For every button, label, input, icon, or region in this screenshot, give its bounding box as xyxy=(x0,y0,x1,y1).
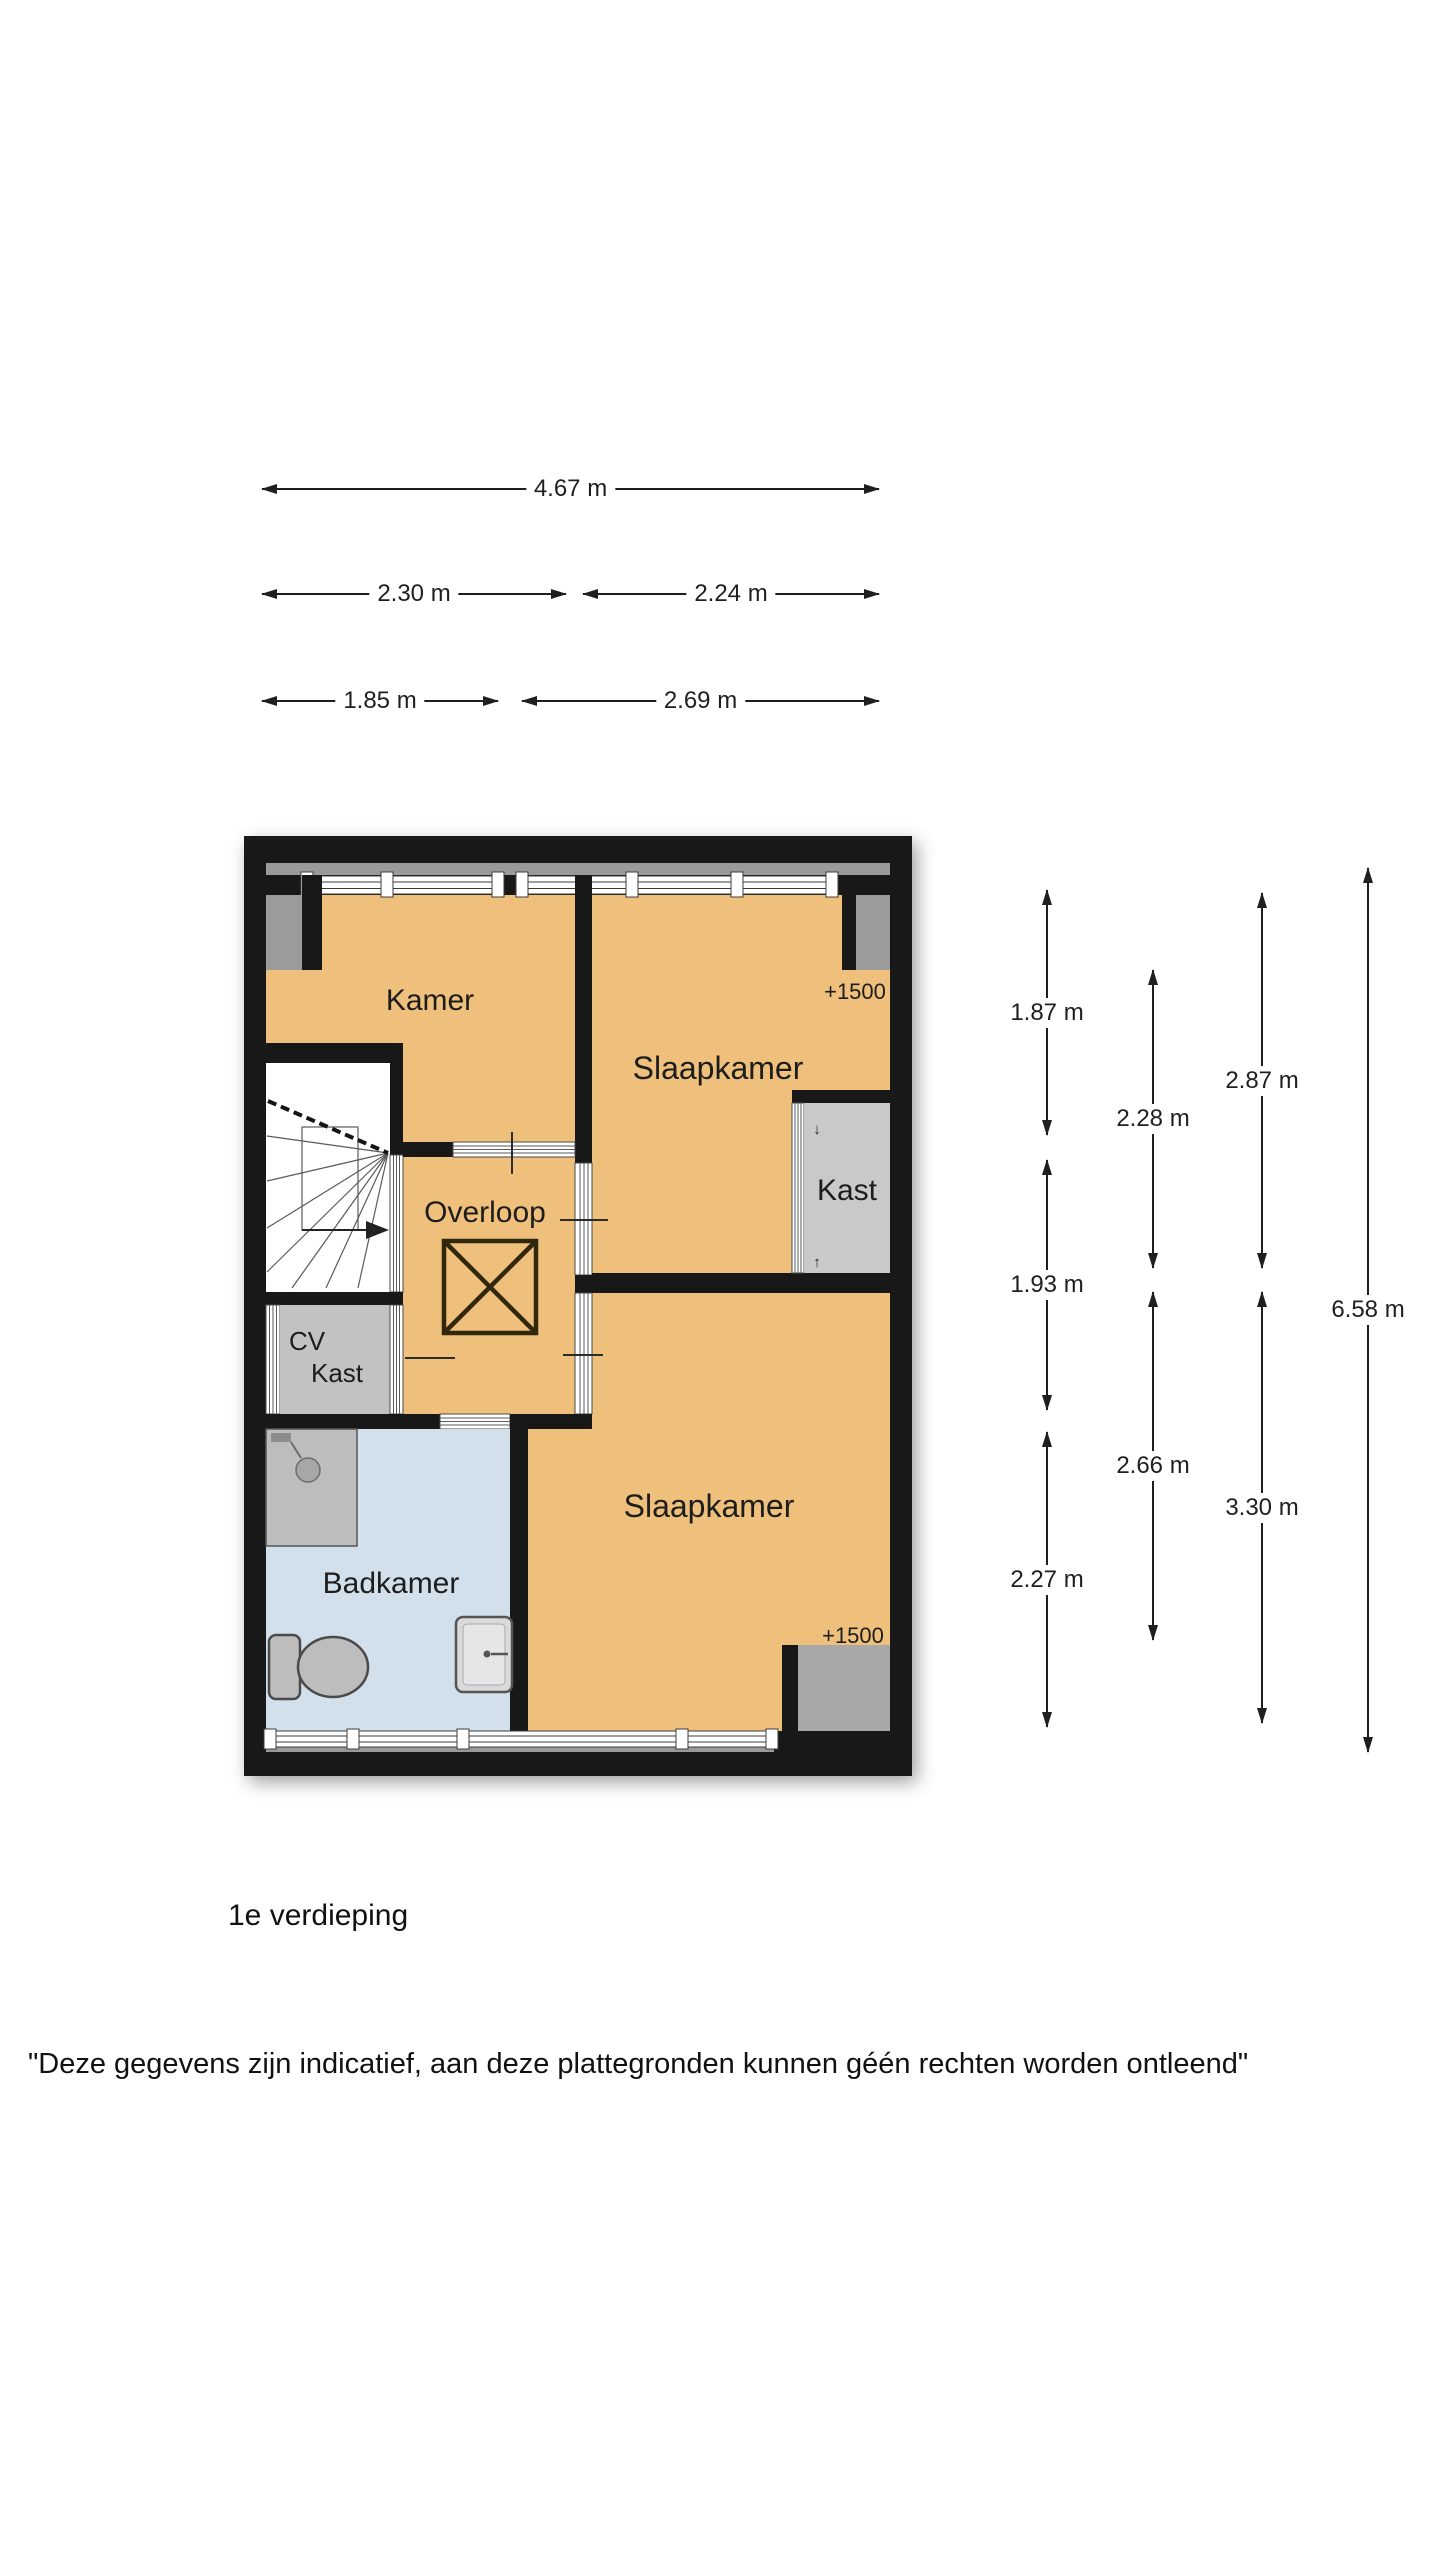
dimension-label: 2.27 m xyxy=(1002,1565,1091,1595)
stairwell xyxy=(252,1043,403,1305)
dimension-right-c1: 2.87 m xyxy=(1261,893,1263,1268)
divider-wall xyxy=(575,875,592,1414)
dimension-right-b1: 2.28 m xyxy=(1152,970,1154,1268)
stair-opening xyxy=(390,1155,403,1292)
dimension-top-total: 4.67 m xyxy=(262,488,879,490)
dimension-label: 2.69 m xyxy=(656,686,745,716)
dimension-label: 2.30 m xyxy=(369,579,458,609)
shower xyxy=(266,1429,357,1546)
slaapkamer-top-label: Slaapkamer xyxy=(633,1050,804,1086)
dimension-label: 3.30 m xyxy=(1217,1493,1306,1523)
dimension-top-left-upper: 2.30 m xyxy=(262,593,566,595)
sink xyxy=(456,1617,512,1692)
dimension-right-a1: 1.87 m xyxy=(1046,890,1048,1135)
dimension-right-total: 6.58 m xyxy=(1367,868,1369,1752)
dimension-label: 1.87 m xyxy=(1002,998,1091,1028)
dimension-label: 1.93 m xyxy=(1002,1270,1091,1300)
dimension-top-left-lower: 1.85 m xyxy=(262,700,498,702)
overloop-label: Overloop xyxy=(424,1196,546,1229)
dimension-top-right-upper: 2.24 m xyxy=(583,593,879,595)
low-ceiling-area xyxy=(782,1645,890,1731)
cv-label: CV xyxy=(289,1326,326,1356)
dimension-top-right-lower: 2.69 m xyxy=(522,700,879,702)
dimension-right-a3: 2.27 m xyxy=(1046,1432,1048,1727)
slaapkamer-top-bottom-wall xyxy=(592,1273,890,1293)
dimension-label: 6.58 m xyxy=(1323,1295,1412,1325)
dimension-label: 2.66 m xyxy=(1108,1451,1197,1481)
door-overloop-badkamer xyxy=(440,1414,510,1429)
floorplan-page: 4.67 m 2.30 m 2.24 m 1.85 m 2.69 m 1.87 … xyxy=(0,0,1440,2560)
kast-arrow-down-icon: ↓ xyxy=(813,1121,821,1138)
badkamer-label: Badkamer xyxy=(323,1567,460,1600)
height-marker-bottom: +1500 xyxy=(822,1623,884,1648)
dimension-right-a2: 1.93 m xyxy=(1046,1160,1048,1410)
floor-caption: 1e verdieping xyxy=(228,1899,408,1933)
toilet xyxy=(269,1635,368,1699)
dimension-label: 4.67 m xyxy=(526,474,615,504)
kamer-label: Kamer xyxy=(386,984,474,1017)
dimension-label: 2.24 m xyxy=(686,579,775,609)
slaapkamer-bottom-label: Slaapkamer xyxy=(624,1488,795,1524)
dimension-right-c2: 3.30 m xyxy=(1261,1292,1263,1723)
dimension-right-b2: 2.66 m xyxy=(1152,1292,1154,1640)
badkamer-top-wall xyxy=(247,1414,592,1429)
kast-arrow-up-icon: ↑ xyxy=(813,1254,821,1271)
kast-label: Kast xyxy=(817,1174,878,1207)
door-overloop-slaapkamer-bottom xyxy=(575,1293,592,1414)
dimension-label: 2.87 m xyxy=(1217,1066,1306,1096)
kamer-bottom-wall xyxy=(252,1043,403,1063)
dimension-label: 2.28 m xyxy=(1108,1104,1197,1134)
top-wall-strip xyxy=(266,863,890,875)
cv-kast-right-door xyxy=(390,1305,403,1414)
height-marker-top: +1500 xyxy=(824,979,886,1004)
door-kamer-overloop xyxy=(403,1142,575,1157)
disclaimer-text: "Deze gegevens zijn indicatief, aan deze… xyxy=(28,2048,1248,2081)
floorplan-drawing: Kamer Slaapkamer +1500 Overloop Kast ↓ ↑… xyxy=(244,836,912,1776)
cv-kast-label: Kast xyxy=(311,1358,364,1388)
dimension-label: 1.85 m xyxy=(335,686,424,716)
